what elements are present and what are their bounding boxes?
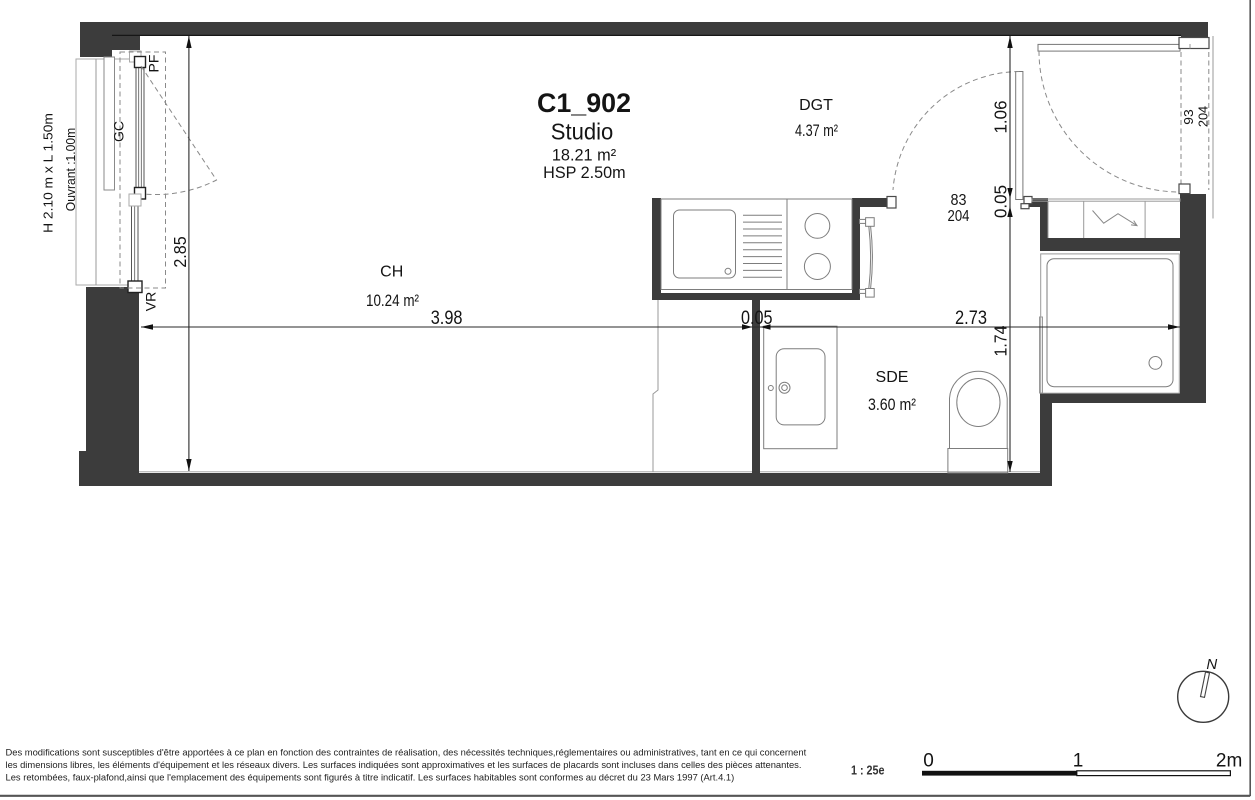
svg-text:2m: 2m — [1216, 751, 1242, 772]
svg-text:N: N — [1206, 656, 1217, 673]
svg-text:H 2.10 m x L 1.50m: H 2.10 m x L 1.50m — [41, 113, 56, 233]
svg-text:18.21 m²: 18.21 m² — [552, 146, 617, 165]
svg-text:2.73: 2.73 — [955, 308, 987, 329]
svg-text:3.98: 3.98 — [431, 308, 463, 329]
svg-text:0: 0 — [923, 751, 934, 772]
svg-text:VR: VR — [143, 292, 159, 311]
svg-text:les dimensions libres, les élé: les dimensions libres, les éléments d'éq… — [6, 759, 802, 770]
svg-text:Des modifications sont suscept: Des modifications sont susceptibles d'êt… — [6, 746, 807, 757]
svg-text:SDE: SDE — [876, 369, 909, 386]
svg-text:93: 93 — [1181, 109, 1196, 124]
svg-text:PF: PF — [145, 55, 161, 73]
svg-text:0.05: 0.05 — [991, 185, 1011, 218]
svg-text:4.37 m²: 4.37 m² — [795, 122, 838, 140]
svg-text:3.60 m²: 3.60 m² — [868, 396, 916, 414]
svg-text:83: 83 — [951, 192, 967, 209]
svg-text:Les retombées, faux-plafond,ai: Les retombées, faux-plafond,ainsi que l'… — [6, 772, 735, 783]
svg-text:CH: CH — [380, 264, 403, 281]
svg-text:DGT: DGT — [799, 97, 833, 114]
svg-text:C1_902: C1_902 — [537, 88, 631, 118]
svg-text:1.06: 1.06 — [991, 101, 1011, 134]
svg-text:204: 204 — [948, 208, 970, 225]
svg-text:204: 204 — [1196, 106, 1211, 127]
svg-text:1: 1 — [1073, 751, 1084, 772]
svg-text:HSP 2.50m: HSP 2.50m — [543, 163, 626, 182]
svg-text:Ouvrant :1.00m: Ouvrant :1.00m — [63, 128, 78, 211]
svg-text:1 : 25e: 1 : 25e — [851, 763, 885, 778]
svg-text:GC: GC — [110, 121, 126, 142]
svg-text:1.74: 1.74 — [991, 325, 1011, 356]
svg-text:2.85: 2.85 — [170, 236, 190, 267]
svg-text:10.24 m²: 10.24 m² — [366, 292, 419, 310]
svg-text:0.05: 0.05 — [741, 308, 773, 329]
svg-text:Studio: Studio — [551, 118, 614, 144]
